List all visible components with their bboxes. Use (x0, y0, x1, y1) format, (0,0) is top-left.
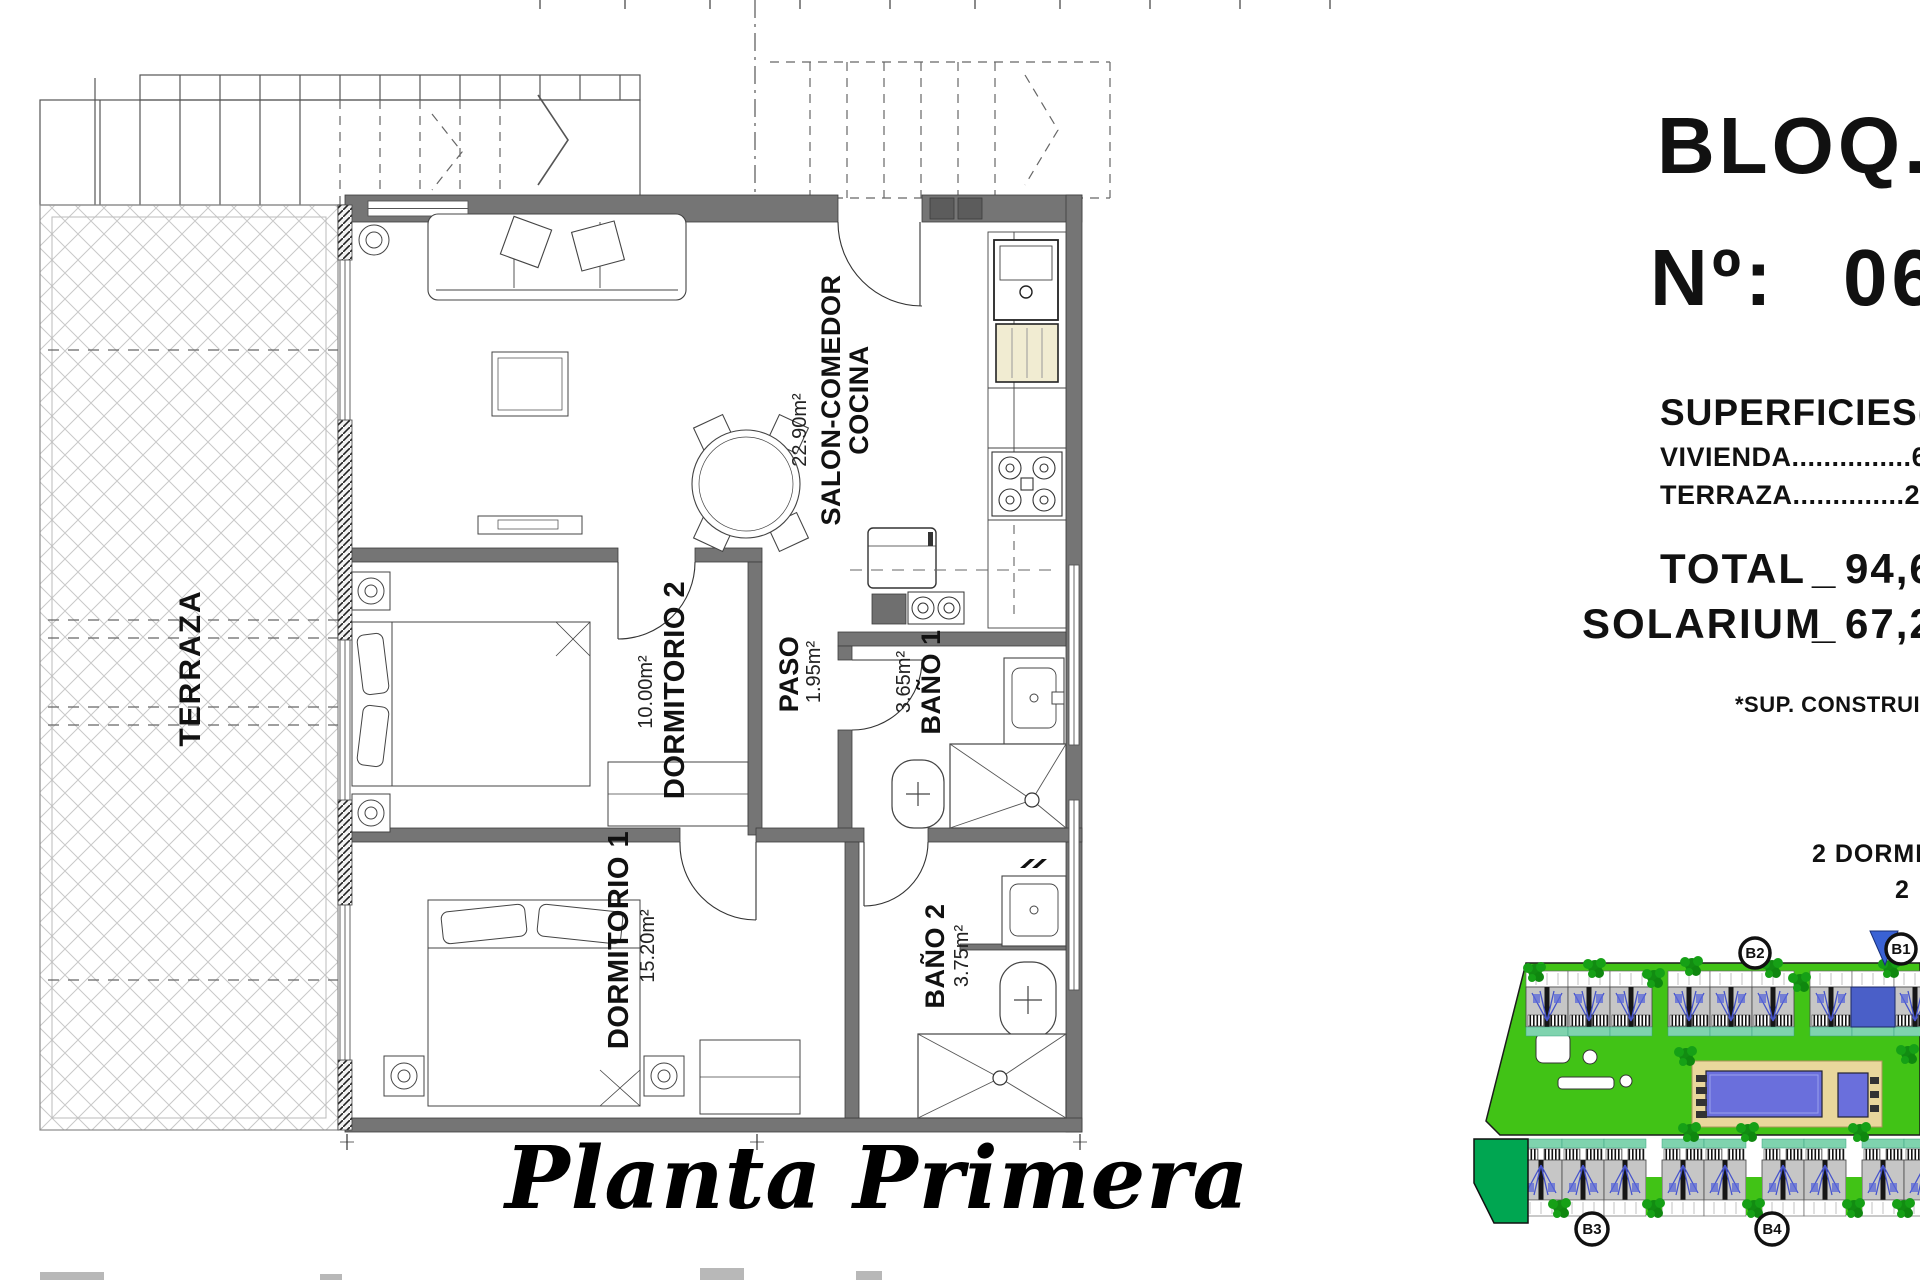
vivienda-value: 67,2 (1912, 442, 1920, 472)
room-label-salon-line1: SALON-COMEDOR (816, 275, 846, 526)
washer (908, 592, 964, 624)
vivienda-label: VIVIENDA (1660, 442, 1792, 472)
room-labels: 22.90m² SALON-COMEDOR COCINA 10.00m² DOR… (603, 275, 973, 1050)
solarium-label: SOLARIUM (1582, 600, 1822, 648)
badge-b3: B3 (1582, 1221, 1601, 1238)
block-label: BLOQ. (1657, 100, 1920, 192)
plant (359, 225, 389, 255)
typology-line2: 2 (1895, 876, 1910, 905)
sheet-title: Planta Primera (505, 1128, 1249, 1229)
site-plan: B2 B1 B3 B4 (1440, 925, 1920, 1280)
pool-area (1692, 1061, 1882, 1127)
bathroom2-toilet (1000, 962, 1056, 1038)
sofa (428, 214, 686, 300)
superficies-title: SUPERFICIES(M (1660, 392, 1920, 434)
room-label-dorm1: DORMITORIO 1 (603, 831, 635, 1049)
area-label-dorm2: 10.00m² (635, 655, 657, 729)
solarium-separator: _ (1812, 600, 1837, 648)
kitchen-cabinet (872, 594, 906, 624)
fridge (868, 528, 936, 588)
bottom-edge-fragments (40, 1268, 882, 1280)
total-value: 94,6 (1845, 545, 1920, 593)
area-label-paso: 1.95m² (803, 641, 825, 704)
vivienda-row: VIVIENDA...............67,2 (1660, 442, 1920, 473)
unit-row-top (1526, 971, 1920, 1036)
vivienda-leader-dots: ............... (1792, 442, 1912, 472)
typology-line1: 2 DORMI (1812, 840, 1920, 869)
bathroom2-shower (918, 1034, 1066, 1118)
bench-dorm1 (700, 1040, 800, 1114)
stairs-dashed (340, 62, 1110, 205)
room-label-paso: PASO (774, 636, 804, 713)
unit-number-value: 06 (1843, 232, 1920, 324)
footnote: *SUP. CONSTRUIDA (1735, 692, 1920, 718)
area-label-salon: 22.90m² (789, 393, 811, 467)
unit-number-label: Nº: (1650, 232, 1776, 324)
bed-dorm2 (352, 572, 590, 832)
terrace: TERRAZA (40, 205, 338, 1130)
room-label-salon-line2: COCINA (844, 345, 874, 455)
drawing-sheet: TERRAZA (0, 0, 1920, 1280)
solarium-value: 67,2 (1845, 600, 1920, 648)
bathroom2-vanity (1002, 876, 1066, 946)
total-separator: _ (1812, 545, 1837, 593)
pool (1706, 1071, 1822, 1117)
highlighted-unit (1851, 987, 1895, 1027)
badge-b2: B2 (1745, 945, 1764, 962)
area-label-dorm1: 15.20m² (637, 909, 659, 983)
area-label-bano1: 3.65m² (893, 651, 915, 714)
badge-b4: B4 (1762, 1221, 1782, 1238)
floor-plan: TERRAZA (0, 0, 1400, 1280)
terraza-value: 27,4 (1905, 480, 1920, 510)
room-label-terraza: TERRAZA (174, 589, 207, 746)
bathroom1-shower (950, 744, 1066, 828)
room-label-bano2: BAÑO 2 (919, 903, 950, 1008)
room-label-bano1: BAÑO 1 (915, 629, 946, 734)
tv-bench (478, 516, 582, 534)
bathroom1-toilet (892, 760, 944, 828)
site-wedge-green (1474, 1139, 1528, 1223)
kitchen-dishrack (996, 324, 1058, 382)
coffee-table (492, 352, 568, 416)
terraza-row: TERRAZA..............27,4 (1660, 480, 1920, 511)
room-label-dorm2: DORMITORIO 2 (659, 581, 691, 799)
area-label-bano2: 3.75m² (951, 925, 973, 988)
badge-b1: B1 (1891, 941, 1910, 958)
bathroom1-vanity (1004, 658, 1064, 744)
top-edge-ticks (540, 0, 1330, 9)
terraza-label: TERRAZA (1660, 480, 1793, 510)
kitchen-hob (992, 452, 1062, 516)
small-pool (1838, 1073, 1868, 1117)
kitchen-sink (994, 240, 1058, 320)
terraza-leader-dots: .............. (1793, 480, 1905, 510)
total-label: TOTAL (1660, 545, 1806, 593)
